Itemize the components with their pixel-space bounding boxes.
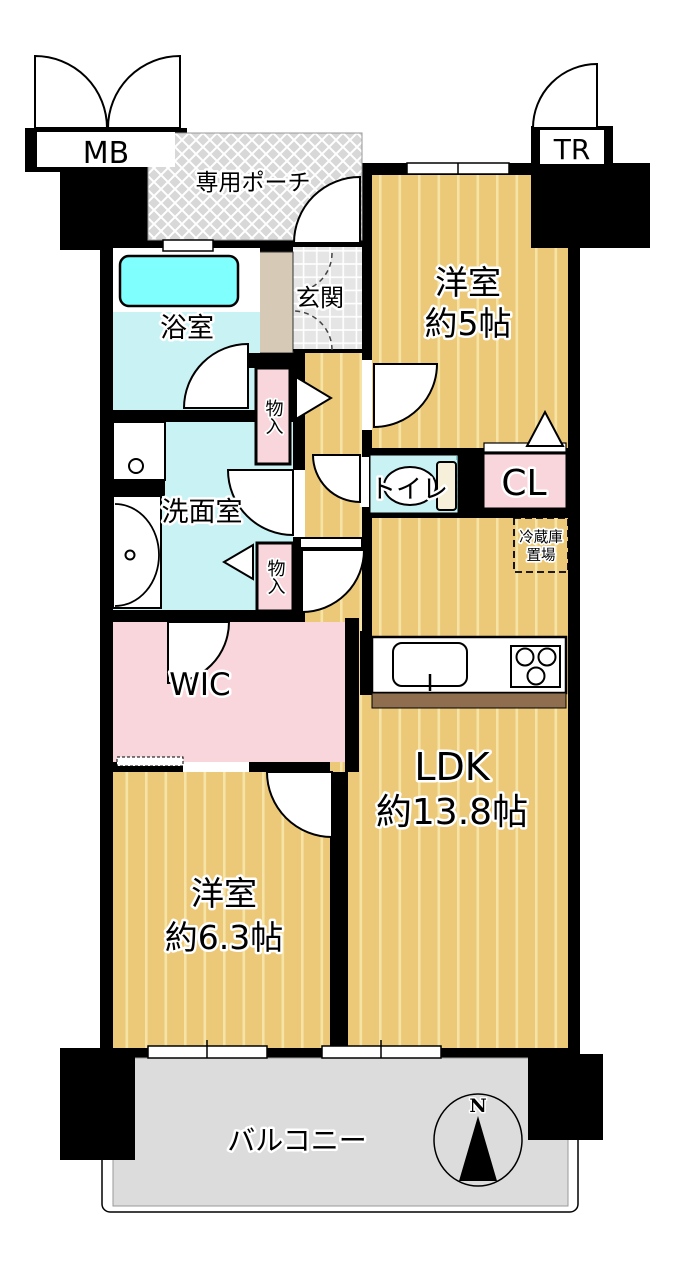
label-storage-lower: 物入 (265, 559, 286, 595)
label-ldk-1: LDK (414, 745, 490, 789)
label-toilet: トイレ (370, 475, 448, 505)
mb-door-right (108, 56, 180, 128)
wall-segment (245, 353, 305, 368)
compass-north-label: N (469, 1095, 486, 1117)
floorplan-drawing: N MB TR 専用ポーチ 玄関 浴室 洗面室 物入 物入 WIC トイレ CL… (0, 0, 677, 1272)
wall-segment (113, 480, 165, 496)
label-porch: 専用ポーチ (196, 170, 311, 196)
basin-drain (126, 551, 135, 560)
label-balcony: バルコニー (227, 1124, 366, 1157)
stove-burner (517, 649, 534, 666)
door-opening (293, 470, 305, 537)
wall-segment (60, 172, 148, 250)
label-west63-1: 洋室 (191, 874, 257, 913)
wall-segment (345, 618, 359, 772)
label-storage-upper: 物入 (263, 399, 284, 435)
ldk-door-leaf (300, 538, 362, 548)
label-mb: MB (83, 136, 129, 171)
kitchen-counter-bar (372, 693, 566, 708)
label-closet: CL (501, 463, 546, 504)
tr-door (533, 64, 597, 128)
wall-segment (528, 1054, 603, 1140)
stove-burner (539, 649, 556, 666)
washer-drain (129, 459, 143, 473)
wic-hanger-rail (117, 757, 183, 766)
kitchen (360, 631, 566, 708)
wall-segment (60, 1048, 135, 1160)
wall-segment (360, 631, 372, 695)
bathtub (120, 256, 238, 306)
mb-door-left (35, 56, 107, 128)
label-west5-2: 約5帖 (425, 304, 512, 343)
door-opening (360, 457, 369, 507)
floorplan: N MB TR 専用ポーチ 玄関 浴室 洗面室 物入 物入 WIC トイレ CL… (0, 0, 677, 1272)
label-wic: WIC (169, 667, 230, 703)
label-fridge-2: 置場 (527, 547, 556, 564)
window (163, 240, 213, 251)
stove-burner (528, 668, 545, 685)
shoe-cabinet (256, 252, 293, 353)
wic-opening (183, 762, 249, 772)
label-west5-1: 洋室 (435, 263, 501, 302)
label-washroom: 洗面室 (162, 497, 243, 528)
label-ldk-2: 約13.8帖 (376, 792, 528, 833)
label-west63-2: 約6.3帖 (165, 918, 283, 957)
label-fridge-1: 冷蔵庫 (519, 529, 563, 546)
label-tr: TR (553, 133, 591, 166)
door-opening (362, 360, 372, 430)
label-bath: 浴室 (160, 313, 214, 344)
label-genkan: 玄関 (296, 284, 344, 312)
